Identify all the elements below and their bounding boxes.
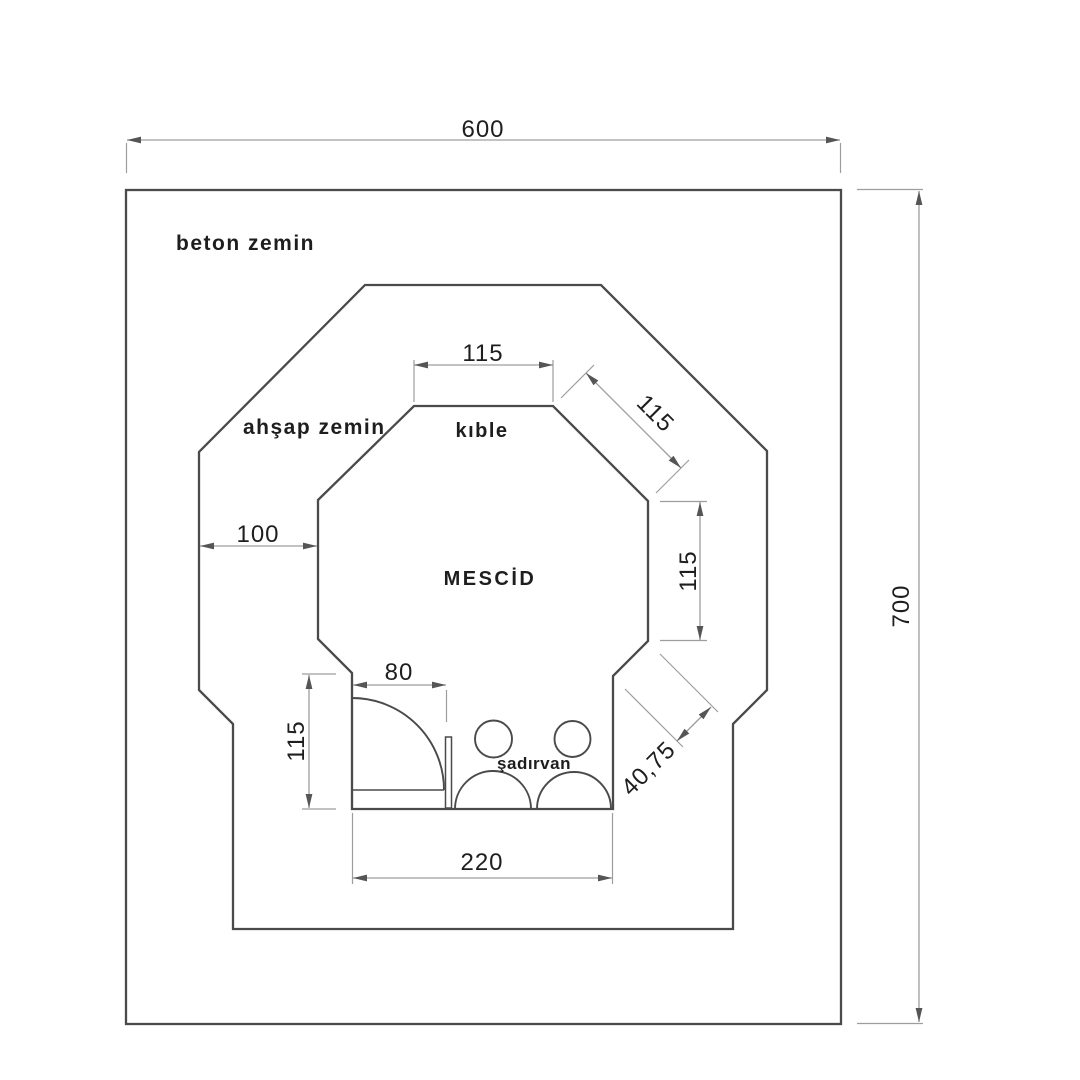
dim-entry-width-label: 220 xyxy=(460,849,503,876)
dim-room-top-label: 115 xyxy=(462,340,503,367)
door-swing-arc xyxy=(352,698,444,790)
wooden-floor-label: ahşap zemin xyxy=(243,416,386,439)
dim-room-top: 115 xyxy=(414,340,553,402)
dim-outer-height: 700 xyxy=(857,190,923,1024)
dim-entry-width: 220 xyxy=(353,813,613,884)
dim-outer-width: 600 xyxy=(127,116,841,173)
wooden-floor-outline xyxy=(199,285,767,929)
floor-plan-drawing: 600 700 115 115 115 100 xyxy=(0,0,1080,1080)
dim-lower-diagonal: 40,75 xyxy=(616,654,718,801)
dim-room-diagonal: 115 xyxy=(561,365,689,493)
fixtures-group xyxy=(352,698,611,809)
floor-plan-canvas: 600 700 115 115 115 100 xyxy=(0,0,1080,1080)
dim-outer-height-label: 700 xyxy=(888,584,915,627)
labels-group: beton zemin ahşap zemin kıble MESCİD şad… xyxy=(176,232,571,773)
walls-group xyxy=(126,190,841,1024)
fountain-basin-right xyxy=(537,772,611,809)
fountain-label: şadırvan xyxy=(497,754,571,773)
dim-room-right-label: 115 xyxy=(675,550,702,591)
fountain-stool-right xyxy=(555,721,591,757)
dim-outer-width-label: 600 xyxy=(461,116,504,143)
fountain-basin-left xyxy=(455,771,531,809)
concrete-floor-label: beton zemin xyxy=(176,232,315,255)
qibla-label: kıble xyxy=(455,420,508,442)
mescid-room-outline xyxy=(318,406,648,809)
dim-door-label: 80 xyxy=(385,659,414,686)
dim-walkway-left-label: 100 xyxy=(236,521,279,548)
dim-entry-left: 115 xyxy=(283,674,336,809)
dim-door: 80 xyxy=(353,659,447,722)
room-label: MESCİD xyxy=(444,567,537,590)
dim-walkway-left: 100 xyxy=(200,521,317,548)
dim-room-diagonal-label: 115 xyxy=(631,390,679,438)
dim-room-right: 115 xyxy=(660,502,707,641)
dim-entry-left-label: 115 xyxy=(283,720,310,761)
fountain-stool-left xyxy=(475,721,512,758)
dim-lower-diagonal-label: 40,75 xyxy=(616,736,681,801)
door-leaf xyxy=(446,737,452,808)
